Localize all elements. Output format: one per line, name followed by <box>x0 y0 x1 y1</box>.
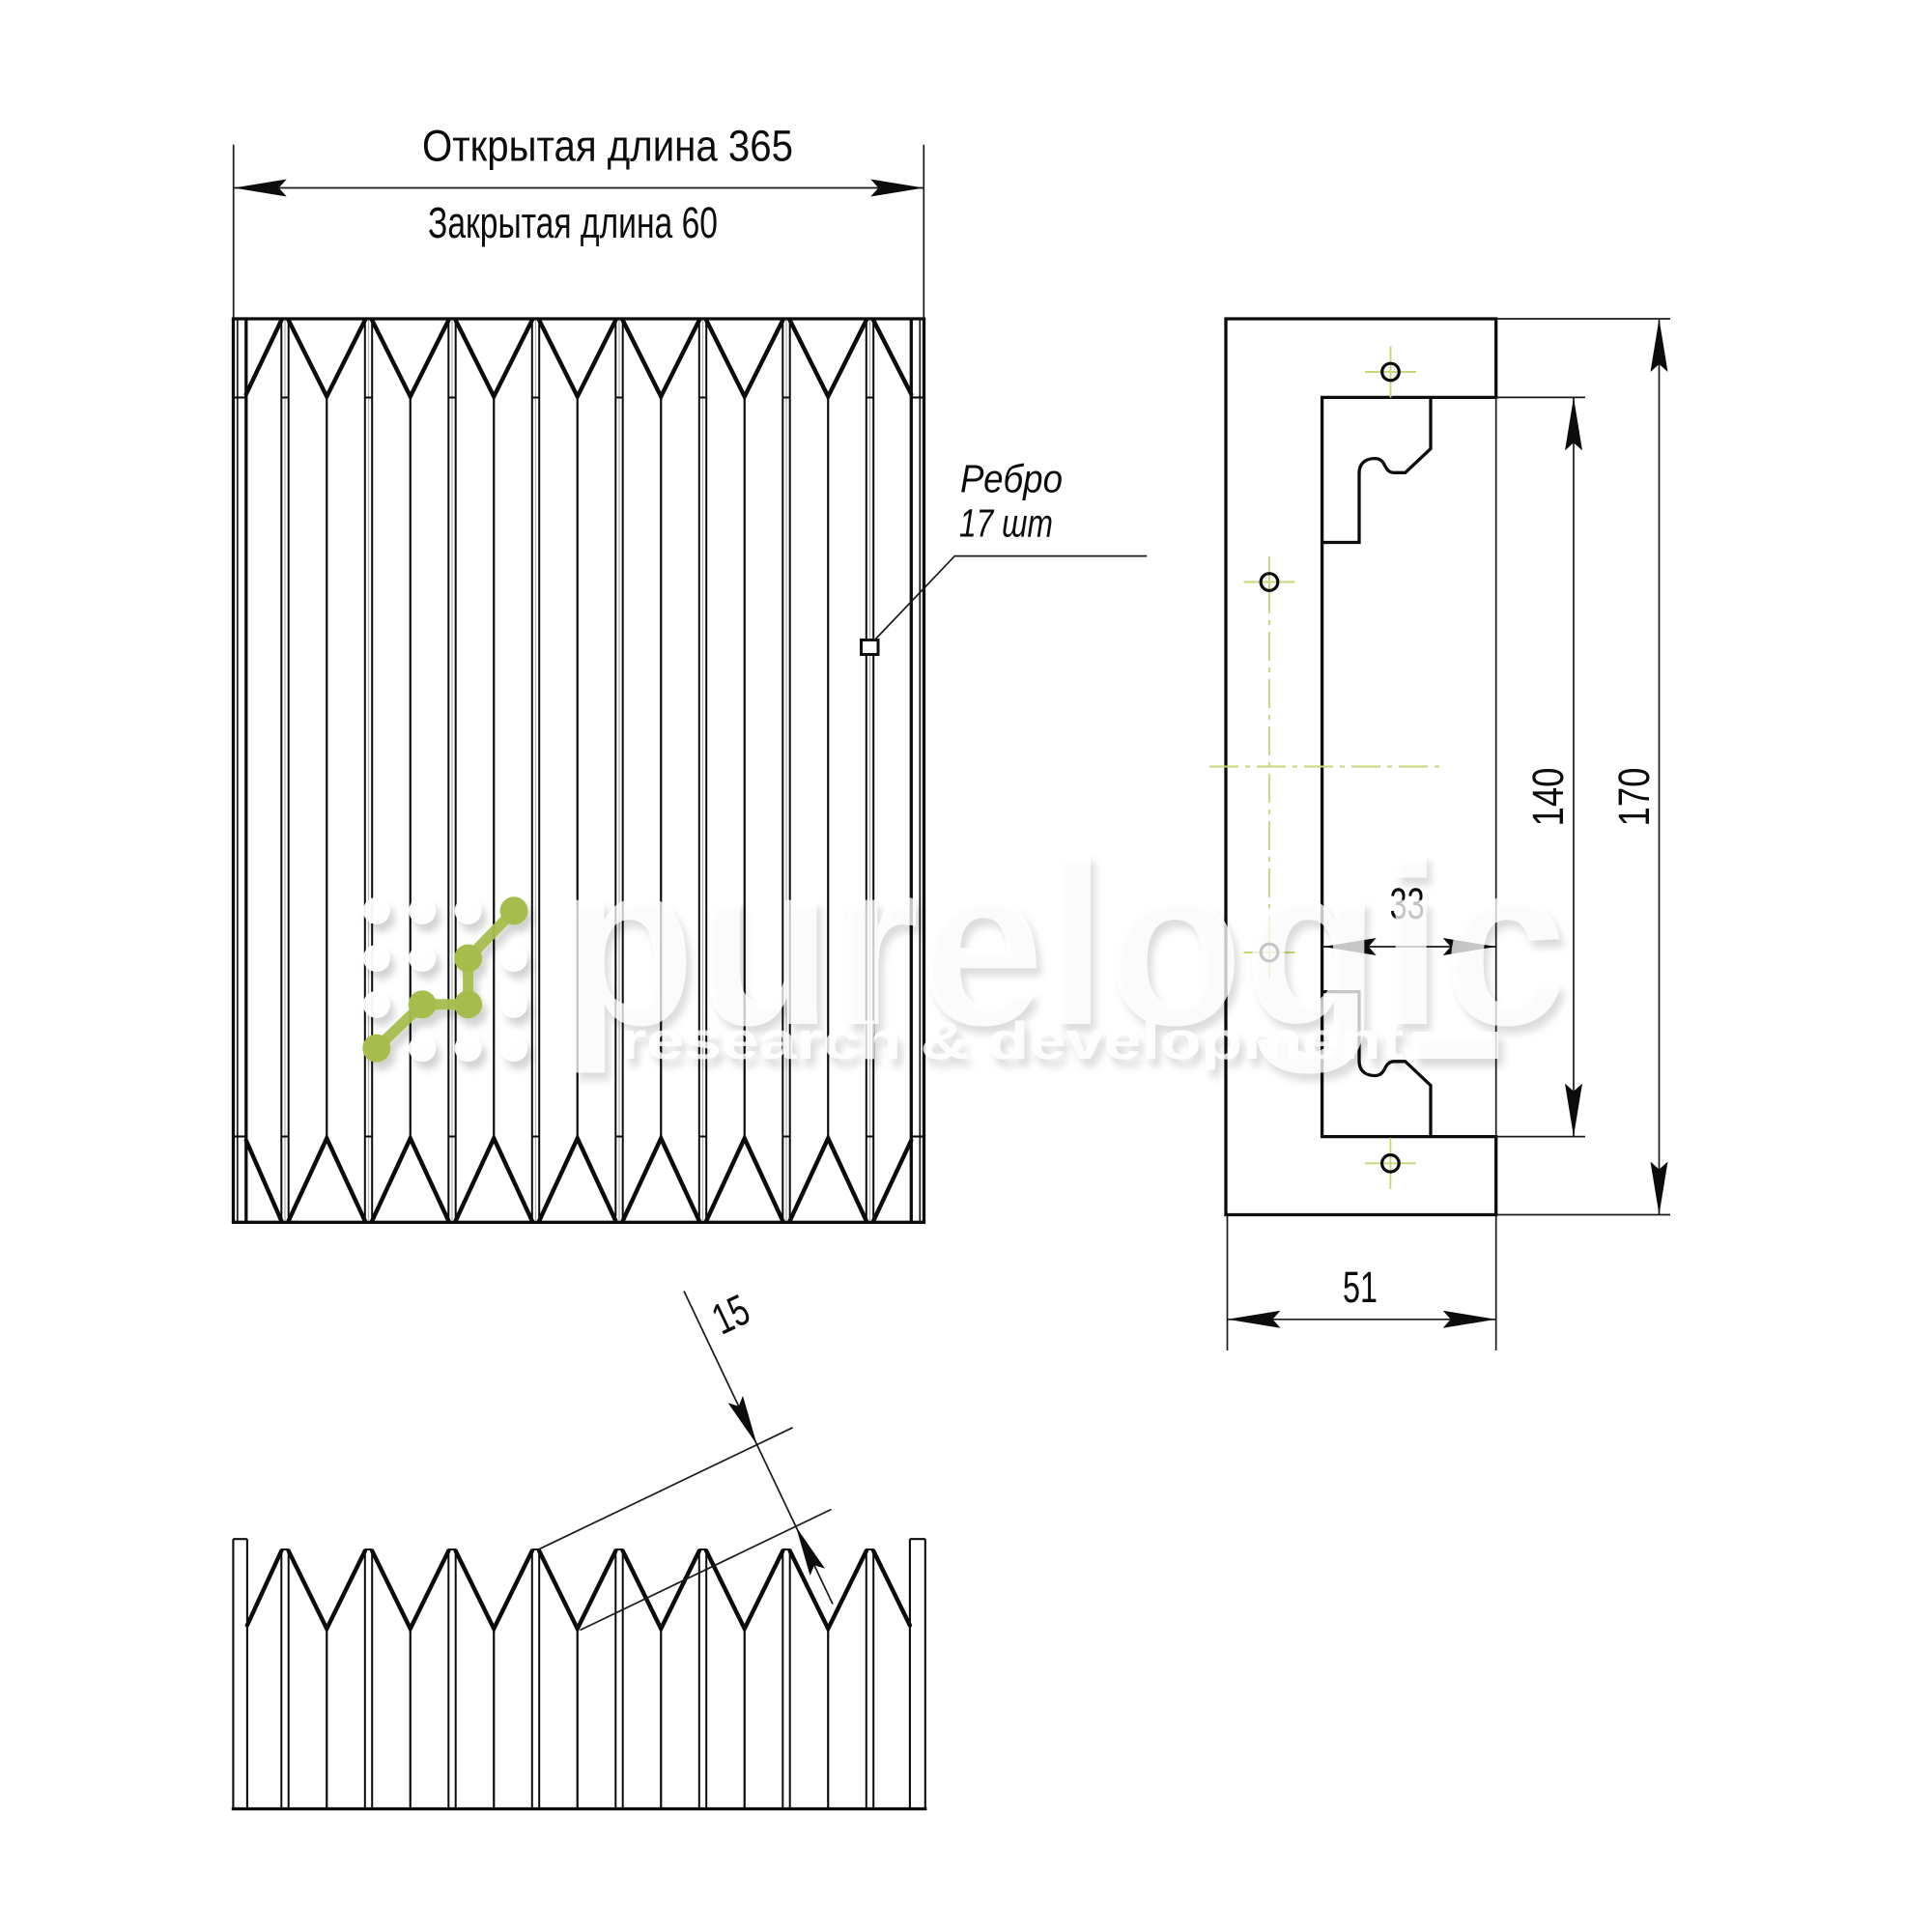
svg-text:Ребро: Ребро <box>960 457 1063 501</box>
svg-text:17 шт: 17 шт <box>959 501 1053 546</box>
svg-text:170: 170 <box>1609 768 1659 827</box>
svg-text:research & development: research & development <box>620 1010 1404 1070</box>
svg-text:Закрытая длина 60: Закрытая длина 60 <box>428 198 718 247</box>
svg-text:Открытая длина 365: Открытая длина 365 <box>422 122 793 171</box>
svg-text:51: 51 <box>1343 1263 1378 1312</box>
